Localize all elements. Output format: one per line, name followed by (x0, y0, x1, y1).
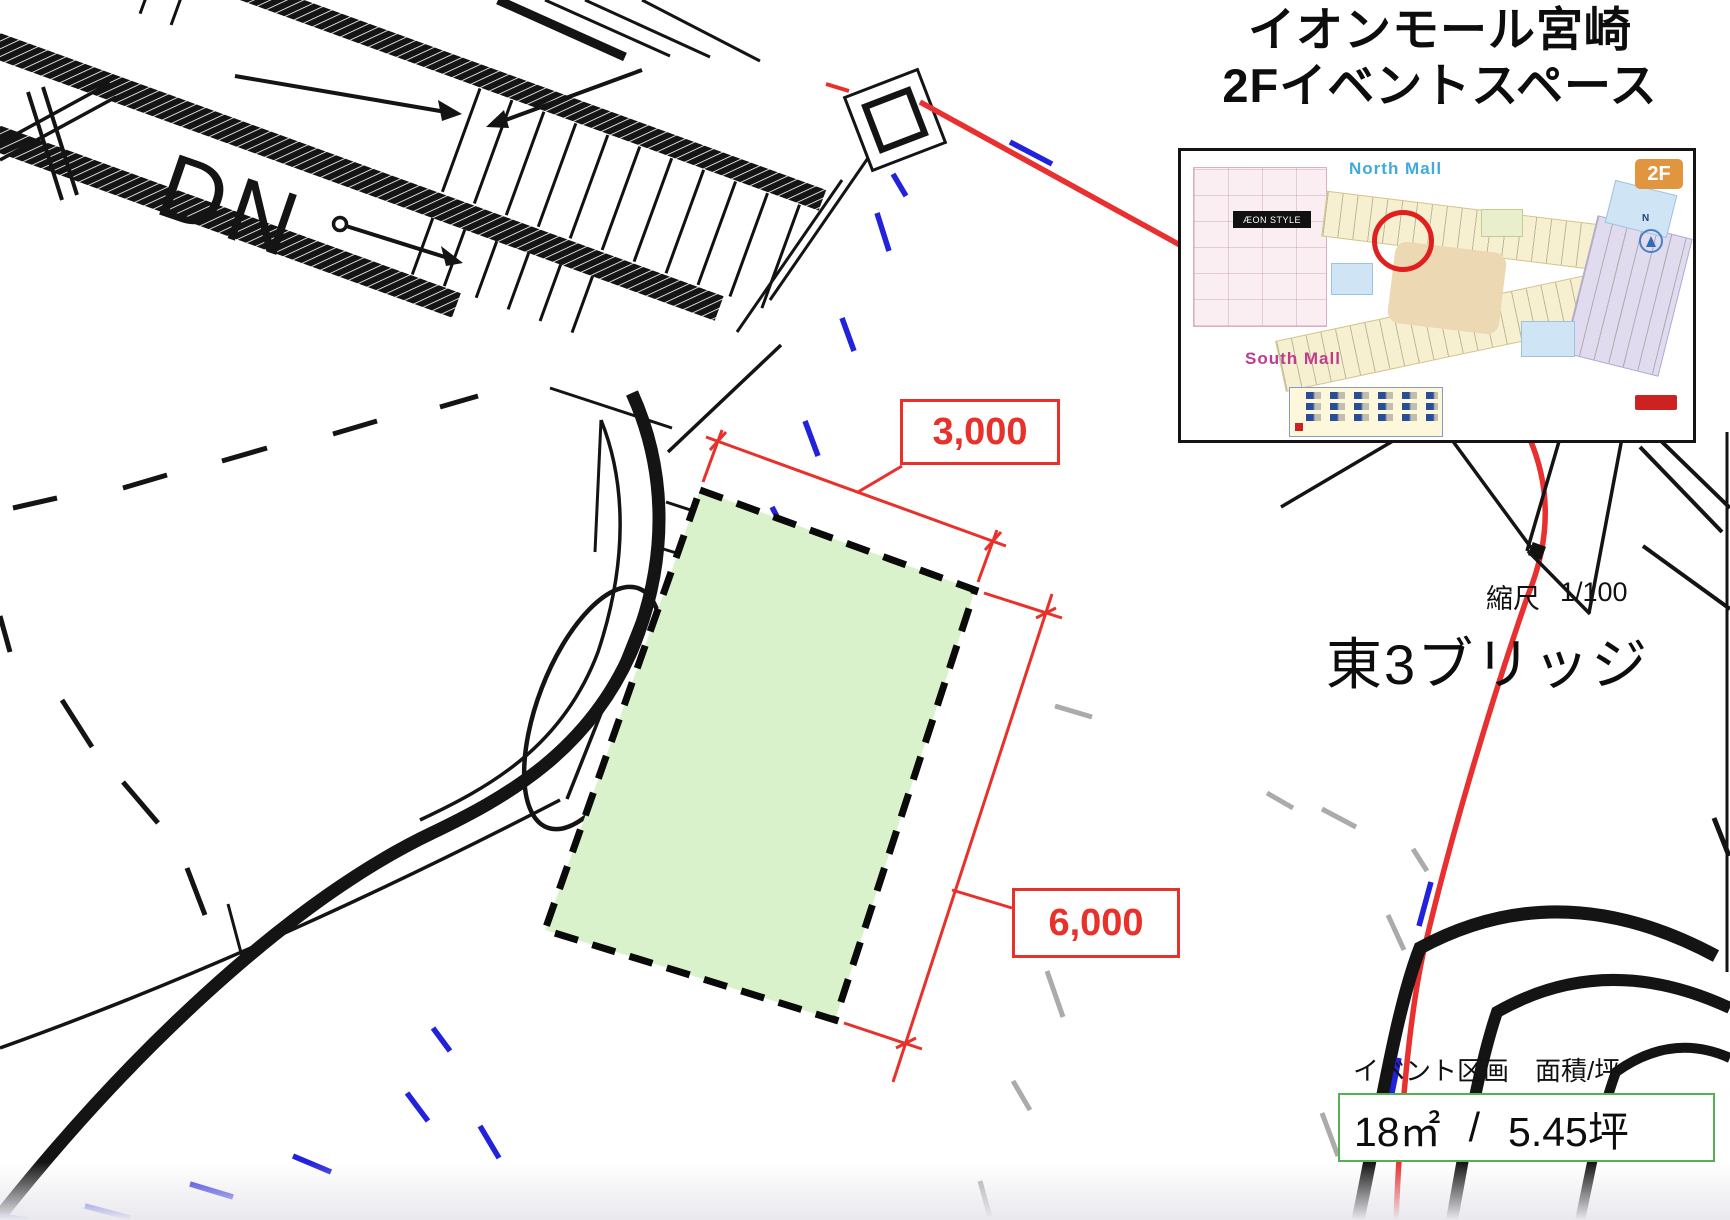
scale-value: 1/100 (1560, 577, 1628, 616)
area-separator: / (1469, 1104, 1480, 1151)
dashed-guide-lines (0, 396, 478, 915)
event-space-area (545, 490, 975, 1020)
aeon-style-logo: ÆON STYLE (1233, 211, 1311, 228)
south-mall-label: South Mall (1245, 349, 1341, 369)
sports-store-badge (1635, 395, 1677, 410)
scale-indicator: 縮尺 1/100 (1486, 577, 1628, 616)
area-tsubo: 5.45坪 (1508, 1098, 1629, 1158)
page-title-line2: 2Fイベントスペース (1160, 58, 1720, 114)
right-wall-cluster (1281, 432, 1730, 972)
map-block-blue-2 (1521, 321, 1575, 357)
event-location-ring (1372, 210, 1434, 272)
floor-2f-badge: 2F (1635, 159, 1683, 189)
map-block-blue-1 (1331, 263, 1373, 295)
aeon-store-block (1193, 167, 1327, 327)
map-legend (1289, 387, 1443, 437)
mall-map-inset: ÆON STYLE North Mall South Mall 2F N (1178, 148, 1696, 443)
page-title: イオンモール宮崎 2Fイベントスペース (1160, 2, 1720, 114)
event-area-caption: イベント区画 面積/坪 (1353, 1051, 1620, 1088)
staircase-structure: DN (0, 0, 826, 452)
location-title: 東3ブリッジ (1326, 620, 1649, 701)
dimension-height-label: 6,000 (1012, 888, 1180, 958)
compass-north-label: N (1642, 213, 1649, 224)
scale-label: 縮尺 (1486, 577, 1540, 616)
north-mall-label: North Mall (1349, 159, 1442, 179)
area-sqm: 18㎡ (1354, 1098, 1441, 1158)
floorplan-page: DN (0, 0, 1730, 1220)
dimension-width-label: 3,000 (900, 399, 1060, 465)
map-block-green (1481, 209, 1523, 237)
ceiling-beams (498, 0, 760, 61)
page-title-line1: イオンモール宮崎 (1160, 2, 1720, 58)
event-area-value-box: 18㎡ / 5.45坪 (1338, 1093, 1715, 1162)
compass-icon (1639, 229, 1663, 253)
